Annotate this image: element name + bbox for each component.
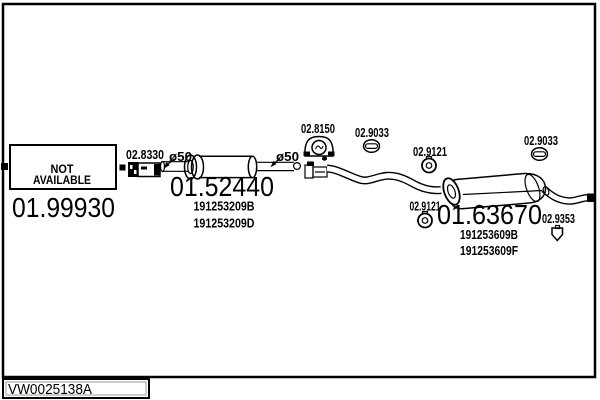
- drawing-frame: [3, 4, 595, 377]
- clamp-mid-label: 02.8150: [301, 121, 335, 136]
- footer-code: VW0025138A: [8, 382, 92, 398]
- front-section-group: NOT AVAILABLE 01.99930: [10, 145, 116, 223]
- grommet-right-label: 02.9033: [524, 133, 558, 148]
- footer-group: VW0025138A: [3, 379, 149, 398]
- connection-marker-left: [1, 163, 8, 170]
- diameter-outlet-label: ø50: [276, 149, 299, 164]
- diagram-canvas: NOT AVAILABLE 01.99930 02.8330 ø50: [0, 0, 600, 400]
- bracket-tail-label: 02.9353: [542, 211, 575, 226]
- clamp-front-label: 02.8330: [126, 147, 164, 162]
- middle-silencer-oe-1: 191253209B: [194, 199, 255, 214]
- rear-silencer-oe-2: 191253609F: [460, 243, 518, 258]
- front-section-code: 01.99930: [12, 192, 115, 223]
- rear-silencer-oe-1: 191253609B: [460, 227, 518, 242]
- not-available-line2: AVAILABLE: [33, 173, 91, 187]
- tailpipe-end-marker: [587, 194, 596, 203]
- exhaust-parts-diagram: NOT AVAILABLE 01.99930 02.8330 ø50: [0, 0, 600, 400]
- connection-marker-mid: [120, 165, 126, 171]
- middle-silencer-code: 01.52440: [170, 171, 274, 202]
- rear-silencer-code: 01.63670: [437, 199, 542, 230]
- middle-silencer-oe-2: 191253209D: [194, 216, 255, 231]
- clamp-front-icon: [128, 162, 160, 177]
- grommet-left-label: 02.9033: [355, 125, 389, 140]
